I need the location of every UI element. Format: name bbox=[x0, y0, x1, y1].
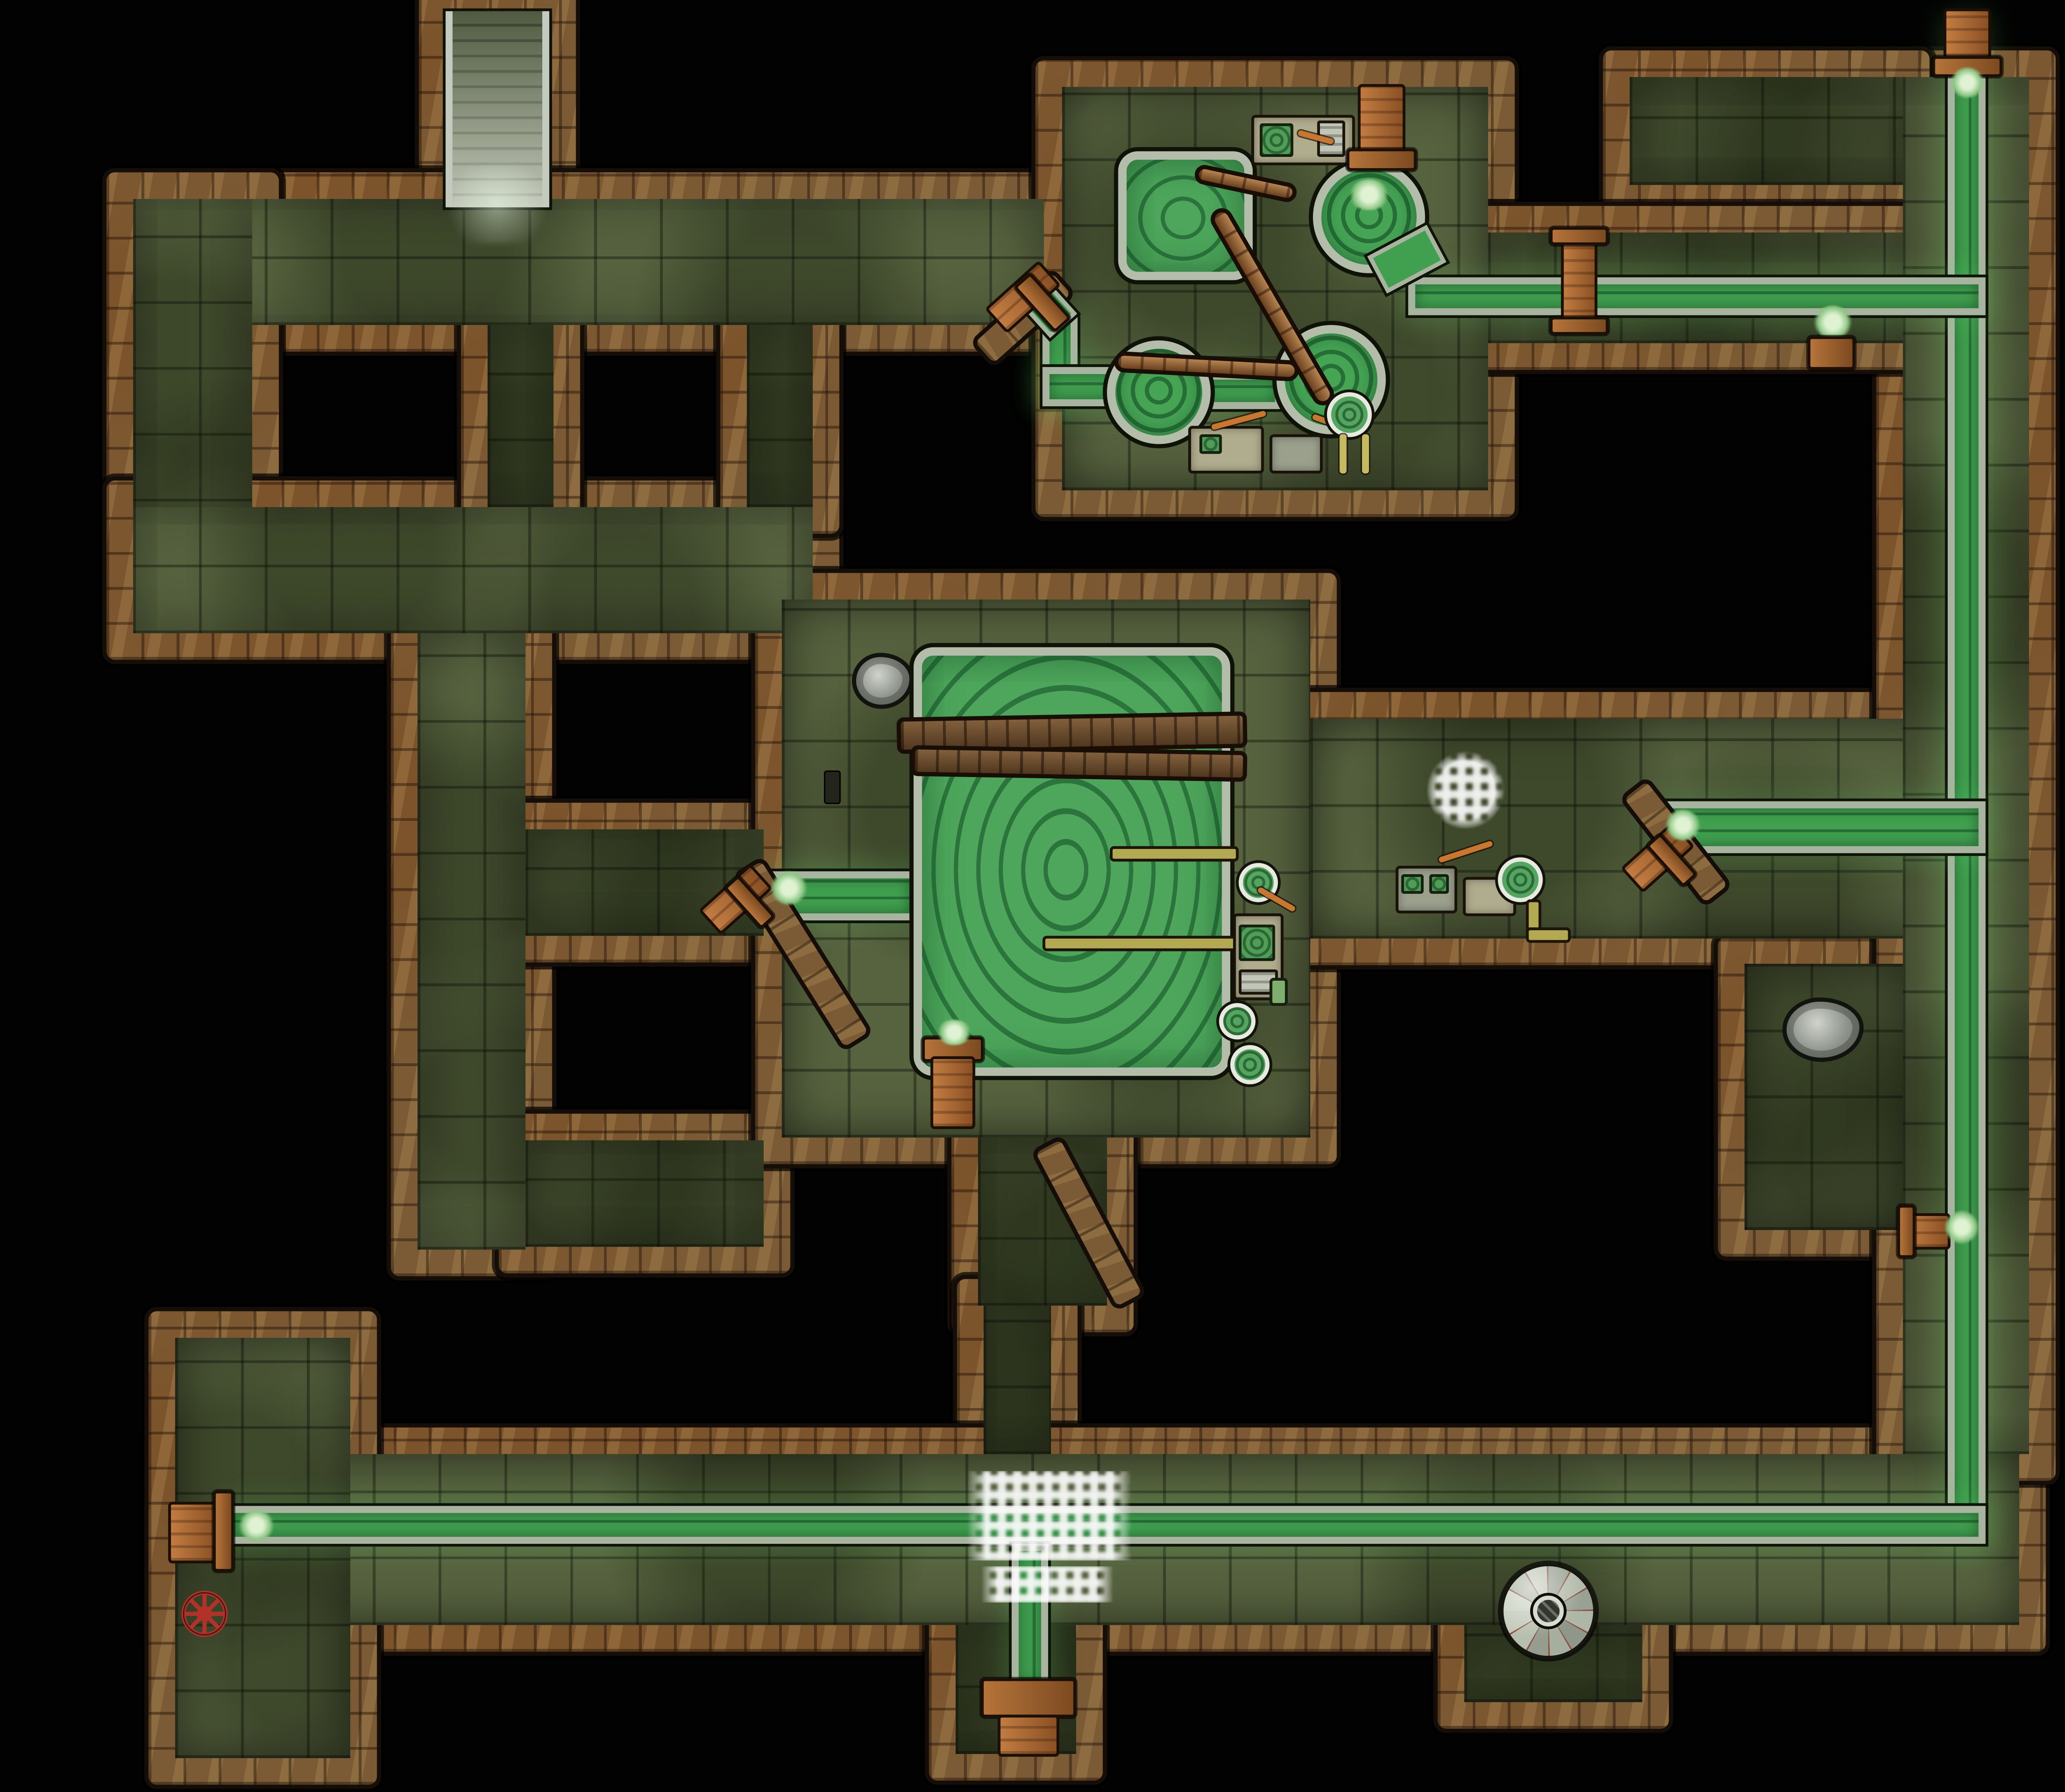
drain-bottom-collar bbox=[981, 1678, 1076, 1718]
grate-room-dish bbox=[1498, 857, 1543, 902]
pipe-machine-room-collar bbox=[1346, 149, 1417, 171]
console-screen bbox=[1260, 123, 1293, 157]
corridor-top-right bbox=[1630, 77, 1903, 185]
top-drain-splash bbox=[1813, 306, 1852, 339]
pump-dish-low bbox=[1230, 1045, 1270, 1084]
map-stage[interactable] bbox=[0, 0, 2065, 1792]
channel-stream-east bbox=[1660, 801, 1985, 853]
grate-room-pipe-elbow bbox=[1526, 927, 1571, 943]
corridor-west-low bbox=[525, 1140, 764, 1247]
vat-panel-screen bbox=[1199, 434, 1222, 454]
channel-top-horizontal bbox=[1408, 277, 1986, 315]
floor-grate-band-faint bbox=[981, 1566, 1114, 1602]
bottom-left-splash bbox=[238, 1510, 275, 1541]
stair-light-glow bbox=[437, 165, 558, 244]
pump-dish-mid bbox=[1219, 1003, 1256, 1039]
ring-bottom-corridor bbox=[133, 507, 813, 633]
pump-screen bbox=[1239, 924, 1275, 961]
dish-leg-a bbox=[1340, 434, 1347, 474]
pump-canister bbox=[1270, 978, 1288, 1006]
bridge-plank-lower bbox=[911, 745, 1247, 782]
pool-pipe-upper bbox=[1110, 846, 1239, 861]
pool-pipe-lower bbox=[1042, 936, 1239, 951]
top-right-splash bbox=[1951, 67, 1984, 98]
ring-column-b bbox=[747, 325, 812, 507]
corridor-west-descent bbox=[418, 633, 525, 1250]
pool-outlet-splash bbox=[936, 1020, 972, 1045]
vat-pour-splash bbox=[1348, 179, 1390, 210]
floor-lever bbox=[824, 770, 841, 804]
ring-column-a bbox=[488, 325, 553, 507]
pipe-elbow-collar bbox=[1897, 1205, 1915, 1258]
grate-room-screen-a bbox=[1401, 874, 1424, 894]
pipe-top-right-inlet bbox=[1944, 8, 1991, 59]
floor-grate-band bbox=[967, 1471, 1132, 1560]
ceiling-grate-circle bbox=[1427, 751, 1505, 830]
corridor-top-left bbox=[133, 199, 1044, 325]
pipe-crossing-collar-n bbox=[1550, 227, 1608, 245]
pipe-machine-room-top bbox=[1358, 84, 1405, 154]
vat-inspection-dish bbox=[1327, 392, 1372, 437]
stream-east-splash bbox=[1665, 810, 1701, 841]
pipe-pool-outlet bbox=[930, 1056, 976, 1129]
funnel-corridor-lower bbox=[984, 1306, 1051, 1454]
grate-room-screen-b bbox=[1429, 874, 1449, 894]
dish-leg-b bbox=[1362, 434, 1369, 474]
pipe-bottom-left-collar bbox=[213, 1491, 234, 1572]
pipe-elbow-splash bbox=[1945, 1210, 1978, 1244]
drain-bottom-pipe bbox=[998, 1715, 1059, 1757]
top-drain-collar bbox=[1808, 336, 1855, 370]
spiral-stair-hub bbox=[1533, 1595, 1564, 1626]
vat-control-panel-b bbox=[1270, 434, 1323, 474]
stream-west-splash bbox=[771, 871, 807, 905]
channel-drain-branch bbox=[1012, 1544, 1048, 1690]
channel-right-vertical bbox=[1948, 19, 1986, 1543]
spiral-staircase bbox=[1501, 1563, 1596, 1659]
pipe-bottom-left-inlet bbox=[168, 1502, 218, 1563]
valve-wheel bbox=[181, 1590, 228, 1638]
pipe-crossing-collar-s bbox=[1550, 317, 1608, 335]
